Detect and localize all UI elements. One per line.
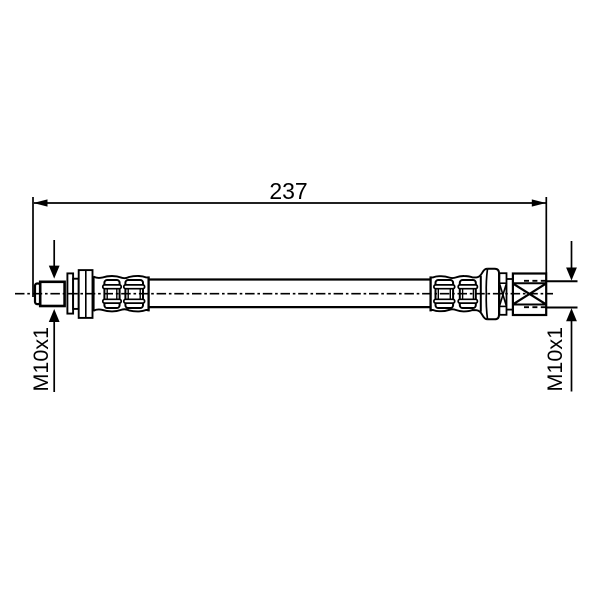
svg-text:M10x1: M10x1 <box>29 327 53 392</box>
svg-text:M10x1: M10x1 <box>543 327 567 392</box>
svg-text:237: 237 <box>269 178 307 204</box>
